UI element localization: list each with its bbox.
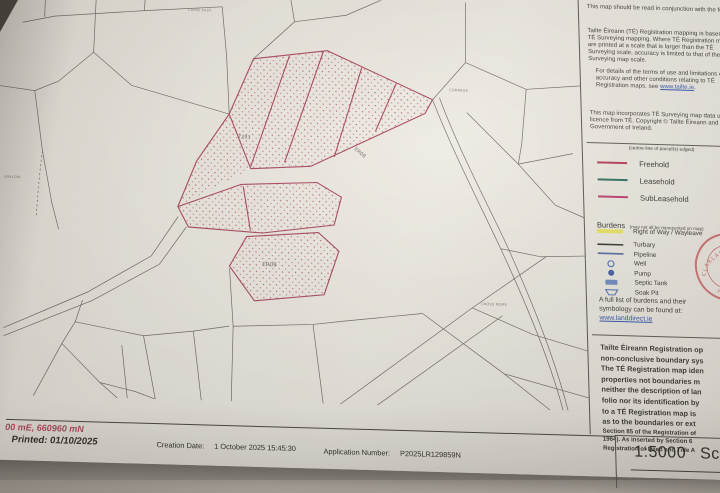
scale-text: 1:5000Scale [634, 443, 720, 464]
legend-caption: (centre-line of parcel(s) edged) [587, 145, 720, 154]
soak-pit-icon [597, 288, 627, 296]
subleasehold-line-swatch [598, 196, 628, 198]
terms-suffix: . [694, 85, 696, 91]
place-label-cross-more: CROSS MORE [481, 302, 507, 307]
note-copyright: This map incorporates TÉ Surveying map d… [590, 110, 720, 135]
application-number-label: Application Number: [323, 447, 390, 458]
pipeline-icon [596, 251, 626, 256]
land-registry-map: 7293 ER08 ER08 LAHID EAST ARKLOW CORRAGE… [0, 0, 590, 411]
place-label-lahid-east: LAHID EAST [188, 8, 212, 13]
burdens-note: A full list of burdens and their symbolo… [599, 296, 720, 327]
landdirect-link: www.landdirect.ie [599, 314, 652, 322]
tailte-link: www.tailte.ie [660, 84, 694, 91]
legend-row-freehold: Freehold [597, 156, 669, 170]
footer-divider [6, 419, 615, 437]
parcel-label-er08-rotated: ER08 [353, 147, 367, 160]
pump-icon [596, 268, 626, 277]
creation-date-value: 1 October 2025 15:45:30 [214, 442, 296, 453]
leasehold-line-swatch [598, 179, 628, 181]
parcel-label-7293: 7293 [238, 134, 251, 140]
application-number-value: P2025LR129859N [400, 449, 461, 460]
legend-row-subleasehold: SubLeasehold [598, 190, 689, 205]
place-label-corrage: CORRAGE [449, 88, 468, 93]
map-sheet: 7293 ER08 ER08 LAHID EAST ARKLOW CORRAGE… [0, 0, 720, 482]
note-read-with-folio: This map should be read in conjunction w… [587, 4, 720, 15]
freehold-label: Freehold [639, 159, 669, 169]
place-label-arklow: ARKLOW [4, 175, 21, 179]
application-number: Application Number:P2025LR129859N [323, 447, 461, 460]
septic-tank-icon [596, 278, 626, 286]
scale-word: Scale [700, 445, 720, 463]
pump-label: Pump [634, 270, 651, 277]
turbary-icon [595, 242, 625, 247]
subleasehold-label: SubLeasehold [640, 193, 689, 203]
legend-row-leasehold: Leasehold [597, 173, 674, 187]
note-te-mapping: Tailte Éireann (TÉ) Registration mapping… [587, 28, 720, 67]
well-icon [596, 259, 626, 268]
note-terms-of-use: For details of the terms of use and limi… [588, 68, 720, 93]
parcel-stipple-fill [173, 46, 438, 305]
well-label: Well [634, 260, 647, 267]
creation-date-label: Creation Date: [156, 440, 204, 450]
creation-date: Creation Date:1 October 2025 15:45:30 [156, 440, 296, 453]
grid-coordinates: 00 mE, 660960 mN [5, 422, 84, 434]
red-notice-divider [592, 334, 720, 340]
scale-ratio: 1:5000 [634, 443, 686, 461]
terms-text: For details of the terms of use and limi… [595, 68, 720, 90]
parcel-label-er08: ER08 [262, 262, 277, 268]
leasehold-label: Leasehold [639, 176, 674, 186]
freehold-line-swatch [597, 162, 627, 164]
tailte-eireann-stamp: CLÁRLANN NA TALÚN PRÍOMH OIFIG [650, 208, 720, 301]
scale-box: 1:5000Scale [615, 435, 720, 493]
scale-bar [631, 469, 720, 474]
right-of-way-icon [595, 228, 625, 234]
printed-date: Printed: 01/10/2025 [11, 434, 97, 447]
